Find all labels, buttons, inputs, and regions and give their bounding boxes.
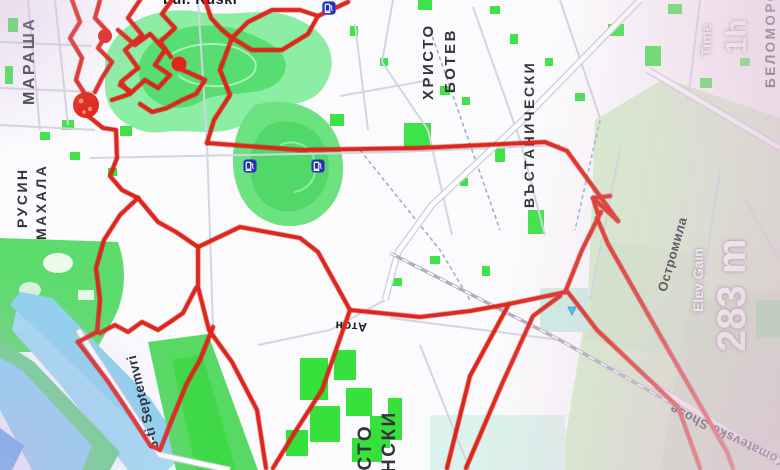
stat-elev-gain-label: Elev Gain <box>691 248 705 312</box>
map-canvas[interactable]: МАРАША РУСИН МАХАЛА ХРИСТО БОТЕВ ВЪСТАНИ… <box>0 0 780 470</box>
fuel-station-icon[interactable] <box>322 1 336 15</box>
fuel-station-icon[interactable] <box>311 159 325 173</box>
location-marker-icon <box>567 303 577 313</box>
stat-time-label: Time <box>699 24 713 56</box>
stat-elev-gain-value: 283 m <box>712 239 752 352</box>
fuel-station-icon[interactable] <box>243 159 257 173</box>
stat-time-value: 1h <box>722 19 752 54</box>
gps-route-track <box>0 0 780 470</box>
